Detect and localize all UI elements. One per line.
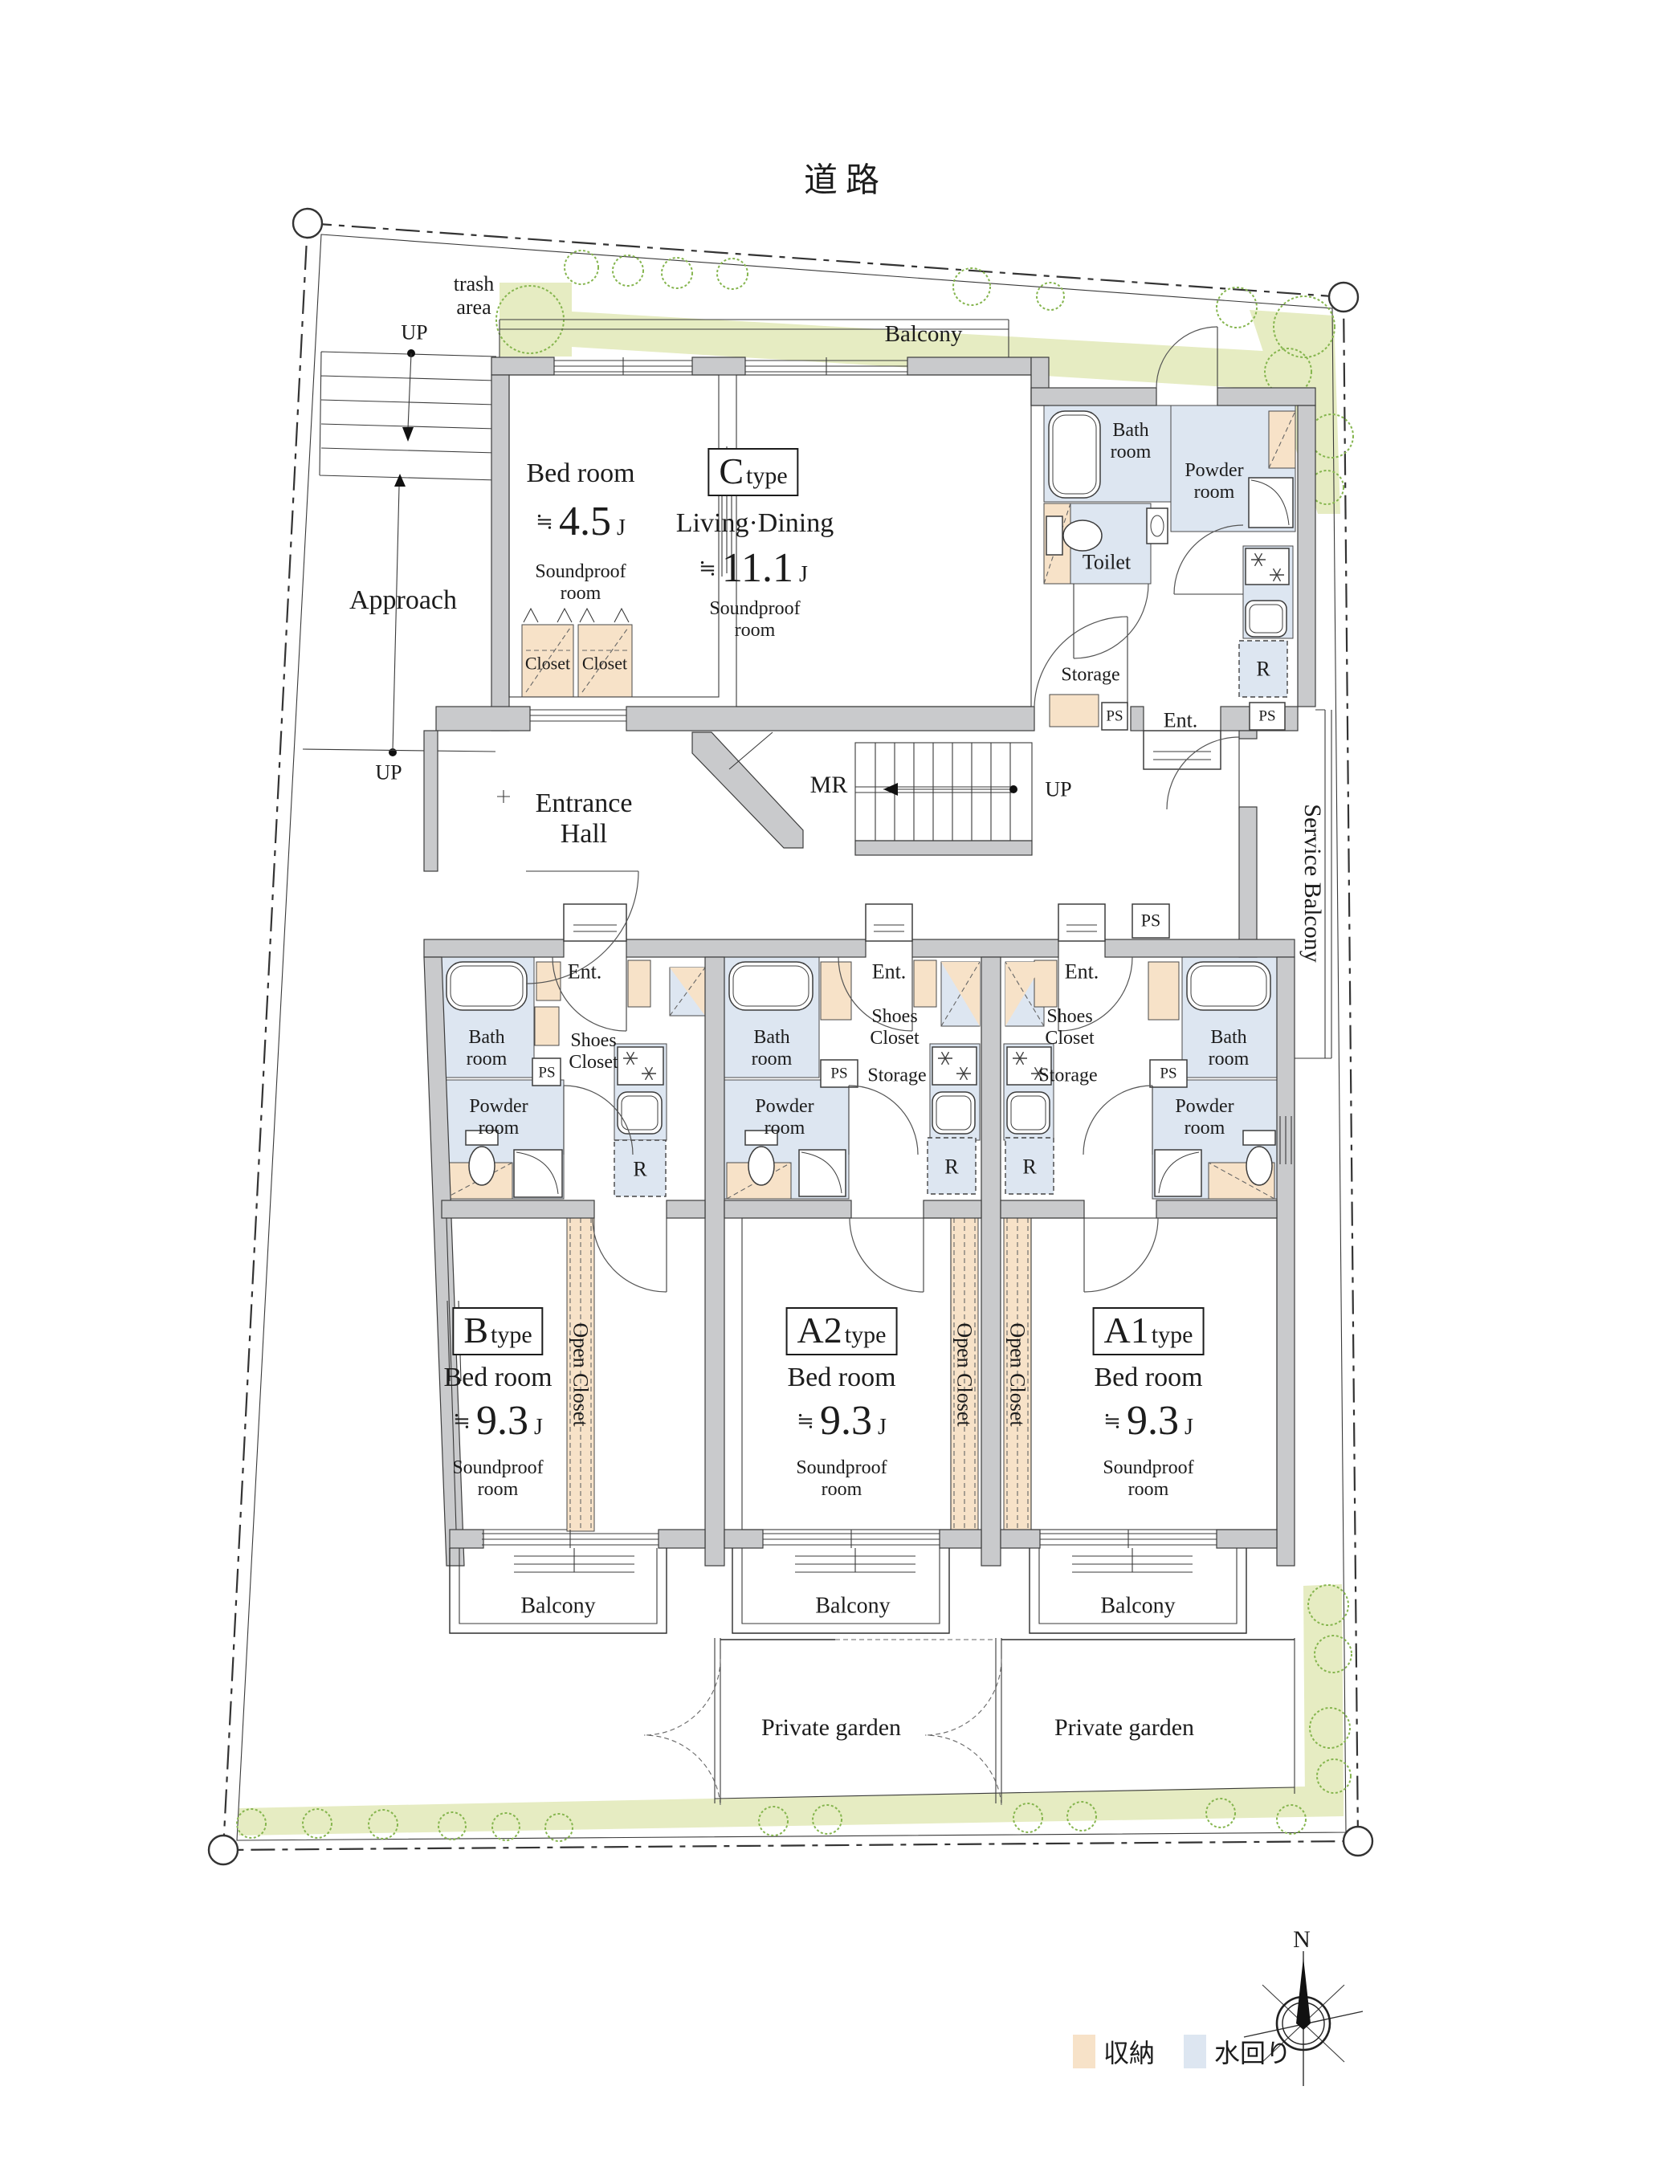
unit-a2-bedroom-label: Bed room (787, 1363, 895, 1393)
hall-ps-label: PS (1141, 911, 1160, 931)
unit-a1-open-closet-label: Open Closet (1005, 1322, 1029, 1426)
unit-c-bedroom-size: ≒4.5J (536, 499, 626, 545)
unit-c-living-label: Living·Dining (676, 508, 834, 539)
unit-a1-type-label: A1type (1093, 1307, 1205, 1355)
legend-storage-swatch (1073, 2035, 1095, 2068)
unit-c-ps2-label: PS (1258, 707, 1275, 724)
unit-c-ps1-label: PS (1106, 707, 1123, 724)
unit-b-ent-label: Ent. (568, 960, 602, 983)
service-balcony-label: Service Balcony (1299, 804, 1326, 962)
unit-a2-size: ≒9.3J (797, 1398, 887, 1444)
legend-water-label: 水回り (1214, 2033, 1291, 2070)
mr-label: MR (810, 772, 848, 799)
unit-b-bedroom-label: Bed room (443, 1363, 552, 1393)
unit-c-living-size: ≒11.1J (699, 545, 808, 592)
unit-b-type-label: Btype (452, 1307, 543, 1355)
unit-a1-shoes-label: Shoes Closet (1031, 1006, 1108, 1049)
unit-b-r-label: R (633, 1157, 646, 1180)
unit-c-bath-label: Bath room (1100, 420, 1161, 463)
unit-a1-ent-label: Ent. (1065, 960, 1099, 983)
unit-b-note: Soundproof room (442, 1457, 554, 1501)
unit-a2-open-closet-label: Open Closet (952, 1322, 976, 1426)
unit-a2-storage-label: Storage (867, 1066, 926, 1087)
unit-a1-note: Soundproof room (1092, 1457, 1205, 1501)
unit-a2-type-label: A2type (786, 1307, 898, 1355)
entry-porches (564, 731, 1221, 941)
unit-b-powder-label: Powder room (455, 1096, 542, 1139)
balcony-top-label: Balcony (885, 321, 963, 347)
unit-a2-r-label: R (944, 1155, 958, 1178)
floor-plan-page: 道路 trash area Balcony UP Approach UP Ent… (0, 0, 1680, 2184)
floor-plan-drawing (0, 0, 1680, 2184)
unit-a2-note: Soundproof room (785, 1457, 898, 1501)
unit-c-r-label: R (1256, 657, 1270, 680)
up-label-main-stairs: UP (1045, 777, 1071, 801)
unit-a2-balcony-label: Balcony (815, 1593, 890, 1618)
private-gardens (644, 1638, 1295, 1805)
unit-a1-bedroom-label: Bed room (1094, 1363, 1202, 1393)
unit-c-bedroom-note: Soundproof room (524, 561, 637, 605)
unit-b-ps-label: PS (538, 1064, 555, 1081)
up-label-approach: UP (375, 760, 402, 784)
approach-label: Approach (349, 585, 457, 616)
unit-a1-powder-label: Powder room (1161, 1096, 1248, 1139)
road-label: 道路 (804, 162, 887, 200)
unit-c-closet1-label: Closet (525, 654, 570, 674)
unit-a1-bath-label: Bath room (1200, 1027, 1258, 1070)
unit-a1-ps-label: PS (1160, 1065, 1176, 1082)
unit-c-toilet-label: Toilet (1083, 550, 1131, 573)
unit-balconies (450, 1548, 1246, 1633)
unit-a1-storage-label: Storage (1038, 1066, 1097, 1087)
private-garden-right-label: Private garden (1054, 1714, 1194, 1742)
unit-c-storage-label: Storage (1061, 665, 1119, 687)
unit-c-living-note: Soundproof room (699, 598, 811, 642)
unit-c-ent-label: Ent. (1164, 708, 1198, 731)
unit-a2-ps-label: PS (830, 1065, 847, 1082)
main-stairs (855, 743, 1032, 841)
legend: 収納 水回り (1073, 2033, 1291, 2070)
unit-b-open-closet-label: Open Closet (569, 1322, 592, 1426)
legend-storage-label: 収納 (1103, 2033, 1155, 2070)
unit-a2-powder-label: Powder room (741, 1096, 828, 1139)
unit-c-type-label: Ctype (707, 448, 798, 496)
entrance-hall-label: Entrance Hall (512, 788, 656, 850)
unit-a2-shoes-label: Shoes Closet (856, 1006, 933, 1049)
unit-b-bath-label: Bath room (458, 1027, 516, 1070)
up-label-exterior-stairs: UP (401, 320, 427, 344)
unit-a2-ent-label: Ent. (872, 960, 907, 983)
unit-c-powder-label: Powder room (1172, 460, 1257, 503)
unit-b-size: ≒9.3J (453, 1398, 543, 1444)
unit-b-shoes-label: Shoes Closet (555, 1030, 632, 1074)
unit-b-balcony-label: Balcony (520, 1593, 595, 1618)
private-garden-left-label: Private garden (761, 1714, 901, 1742)
unit-a2-bath-label: Bath room (743, 1027, 801, 1070)
unit-c-closet2-label: Closet (582, 654, 627, 674)
unit-a1-r-label: R (1022, 1155, 1036, 1178)
trash-area-label: trash area (441, 272, 507, 319)
exterior-stairs (320, 349, 498, 480)
compass-north-label: N (1293, 1926, 1311, 1954)
unit-a1-size: ≒9.3J (1103, 1398, 1193, 1444)
legend-water-swatch (1184, 2035, 1206, 2068)
unit-c-bedroom-label: Bed room (526, 458, 634, 489)
unit-a1-balcony-label: Balcony (1100, 1593, 1175, 1618)
closet-door-marks (524, 609, 629, 622)
